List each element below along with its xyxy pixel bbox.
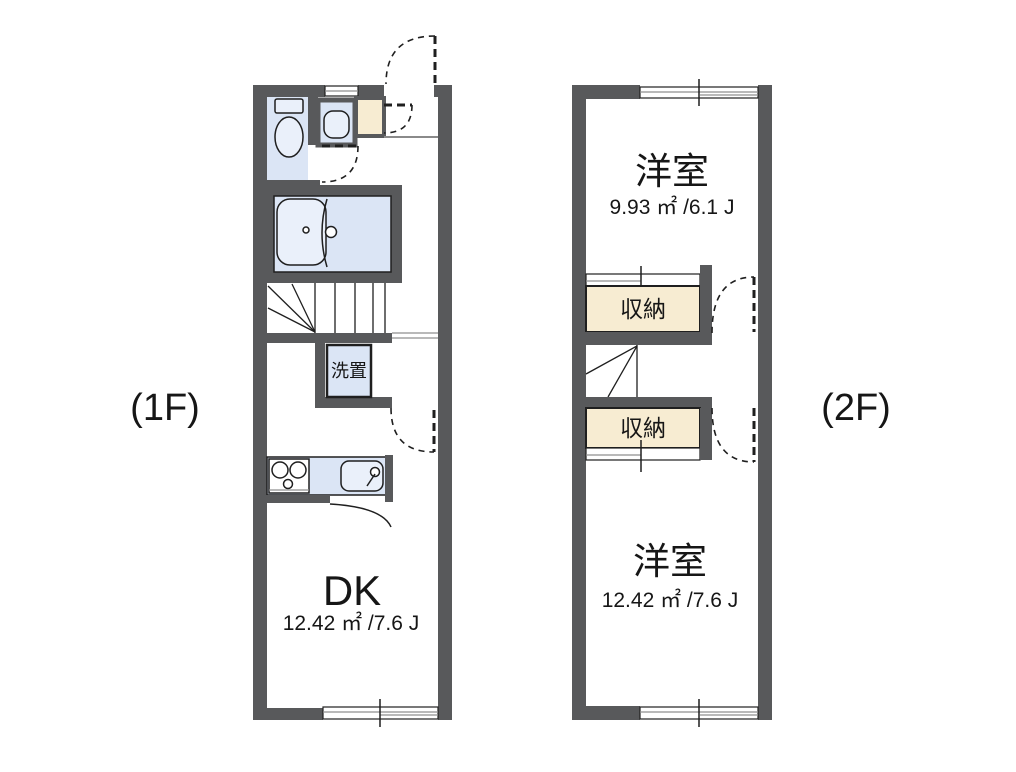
toilet-tank [275,99,303,113]
wall-top-2 [358,85,384,97]
washer-space: 洗置 [315,343,392,408]
floor2-label: (2F) [821,387,891,429]
washbasin-bowl [324,111,349,138]
wall-right [438,85,452,720]
kitchen-door-arc [330,504,391,527]
entrance-hall-door [384,105,412,133]
wall-top [572,85,640,99]
washroom-door [322,146,358,182]
room-lower-door [712,408,754,462]
room-lower-area: 12.42 ㎡ /7.6 J [602,588,739,612]
wall-top-3 [434,85,452,97]
closet-upper-stub-wall [700,265,712,332]
hall-dk-door [391,408,434,452]
closet-upper: 収納 [586,266,700,332]
closet-lower-stub-wall [700,408,712,460]
wall-bottom [253,708,323,720]
stairs-2f [586,345,637,397]
stove [269,459,309,493]
closet-lower-label: 収納 [620,415,666,441]
closet-lower: 収納 [586,408,700,472]
closet-lower-slider [586,448,700,460]
washer-wall-bottom [315,397,392,408]
room-upper-area: 9.93 ㎡ /6.1 J [610,195,735,219]
closet-upper-label: 収納 [620,296,666,322]
stairs-bottom-wall [253,333,392,343]
window-1f-bottom [323,699,438,727]
bathtub [277,199,326,265]
room-upper-label: 洋室 [635,151,709,192]
window-1f-top [325,86,358,96]
wall-below-closet-upper [572,332,712,345]
bathroom [263,185,402,283]
window-2f-top [640,79,758,106]
kitchen-wall-stub [385,455,393,502]
wall-right [758,85,772,720]
floor2-plan: 洋室 9.93 ㎡ /6.1 J 収納 収納 [572,79,772,727]
drain-icon [303,227,309,233]
floorplan-svg: 洗置 DK 1 [0,0,1016,772]
shoe-cabinet [356,98,384,136]
room-upper-door [712,277,754,333]
wall-bottom [572,706,640,720]
washbasin [318,100,355,145]
kitchen-sink [341,461,383,491]
dk-room-label: DK [323,567,381,614]
window-2f-bottom [640,699,758,727]
floorplan-canvas: 洗置 DK 1 [0,0,1016,772]
kitchen-under-wall [253,495,330,503]
dk-area-label: 12.42 ㎡ /7.6 J [283,611,420,635]
toilet-bowl [275,117,303,157]
wall-below-stairs-2f [572,397,712,408]
closet-upper-slider [586,274,700,286]
washer-label: 洗置 [331,361,367,381]
floor1-plan: 洗置 DK 1 [253,36,452,727]
wall-top-1 [253,85,325,97]
room-lower-label: 洋室 [633,541,707,582]
stairs-1f [268,283,385,333]
kitchen [253,455,393,527]
bath-handle-icon [326,227,337,238]
entrance-door [386,36,435,84]
floor1-label: (1F) [130,387,200,429]
